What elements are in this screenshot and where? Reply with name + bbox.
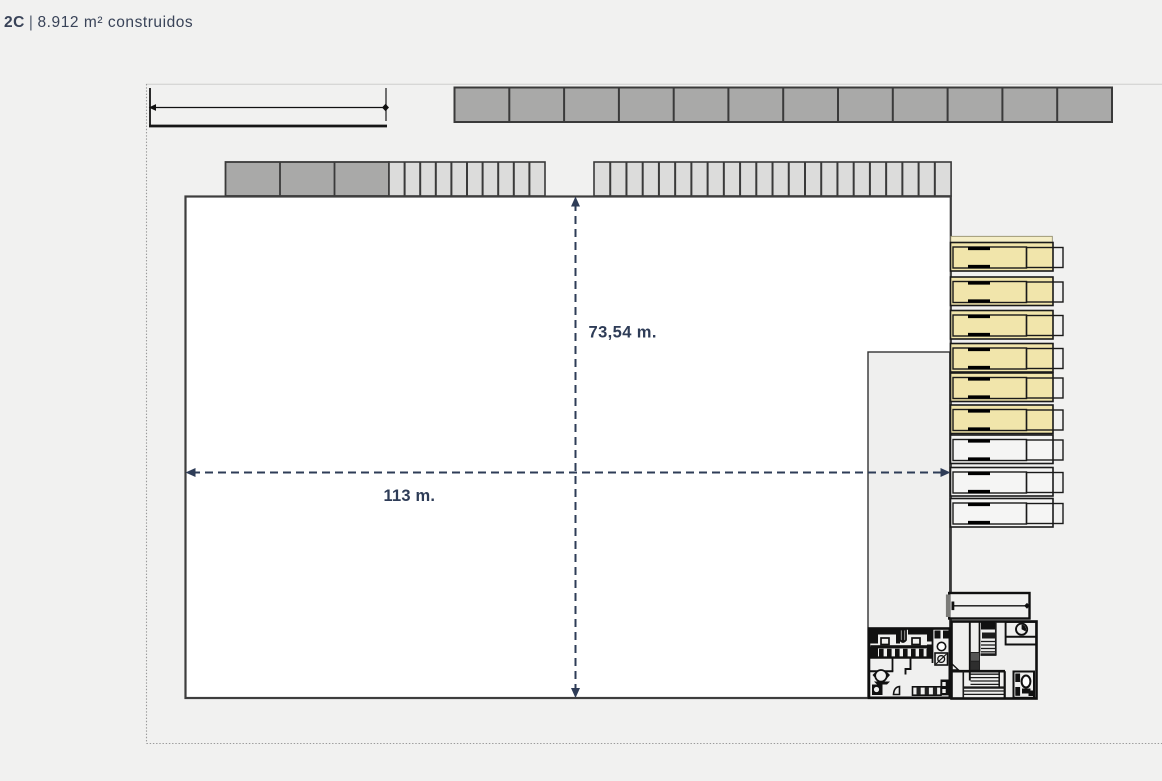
svg-text:2C|8.912 m² construidos: 2C|8.912 m² construidos bbox=[4, 14, 193, 31]
svg-text:73,54 m.: 73,54 m. bbox=[589, 324, 657, 342]
svg-text:113 m.: 113 m. bbox=[384, 487, 436, 505]
